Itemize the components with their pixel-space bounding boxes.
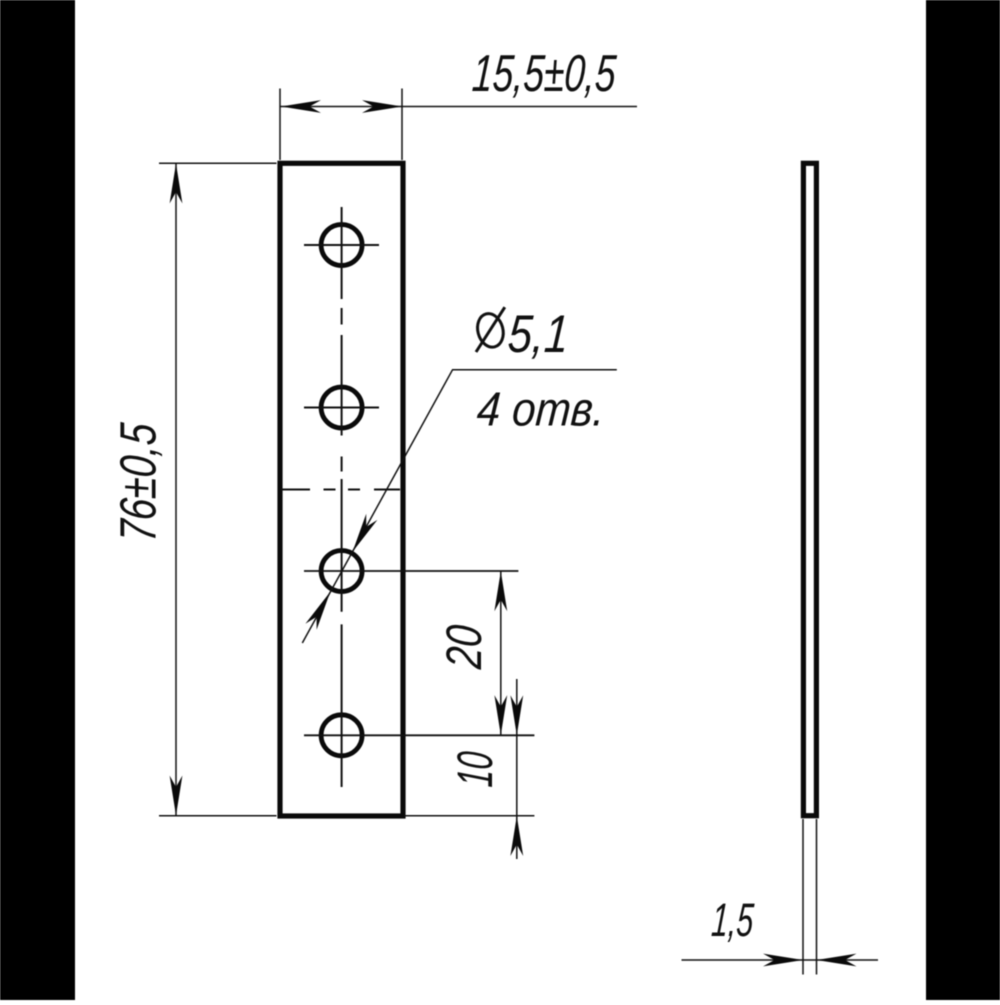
svg-text:15,5±0,5: 15,5±0,5: [470, 44, 618, 103]
svg-text:20: 20: [435, 623, 492, 671]
svg-text:5,1: 5,1: [506, 305, 571, 364]
svg-text:4 отв.: 4 отв.: [475, 382, 606, 436]
svg-text:10: 10: [447, 750, 503, 789]
svg-text:76±0,5: 76±0,5: [110, 421, 167, 544]
svg-text:1,5: 1,5: [710, 894, 756, 946]
